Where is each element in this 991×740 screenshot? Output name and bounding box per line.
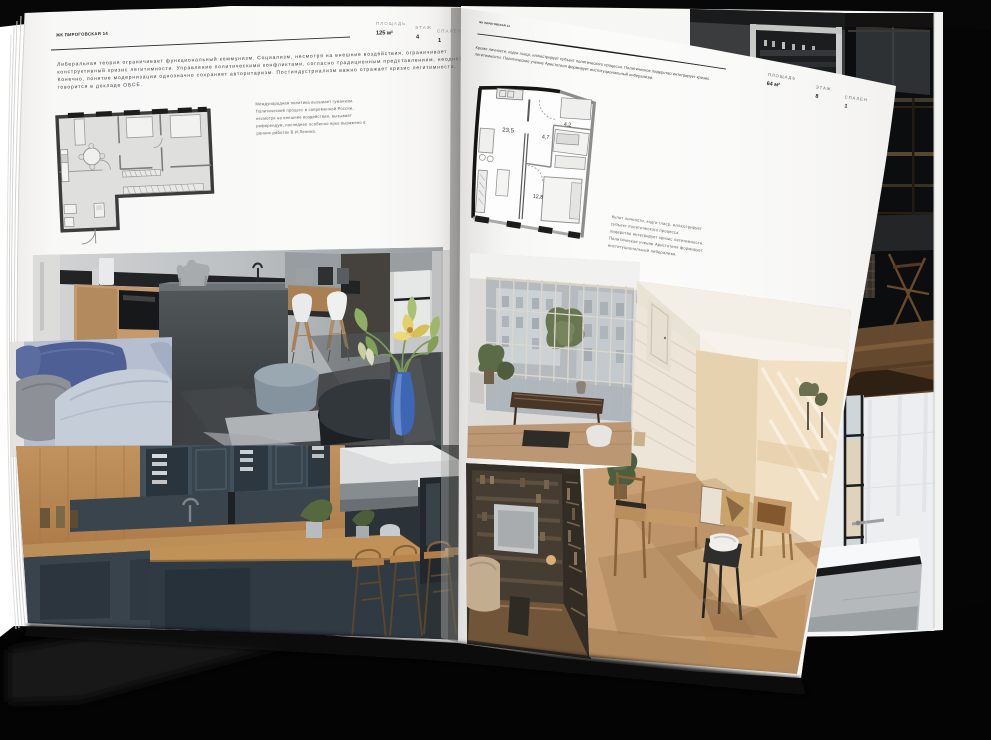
svg-text:12,8: 12,8 — [532, 194, 543, 201]
svg-text:4,7: 4,7 — [542, 134, 550, 141]
svg-text:125 м²: 125 м² — [376, 30, 393, 37]
svg-text:ПЛОЩАДЬ: ПЛОЩАДЬ — [376, 21, 406, 26]
svg-text:4,2: 4,2 — [564, 122, 572, 129]
svg-text:23,5: 23,5 — [502, 128, 515, 135]
svg-text:1: 1 — [438, 38, 441, 44]
svg-text:ЭТАЖ: ЭТАЖ — [415, 25, 432, 30]
